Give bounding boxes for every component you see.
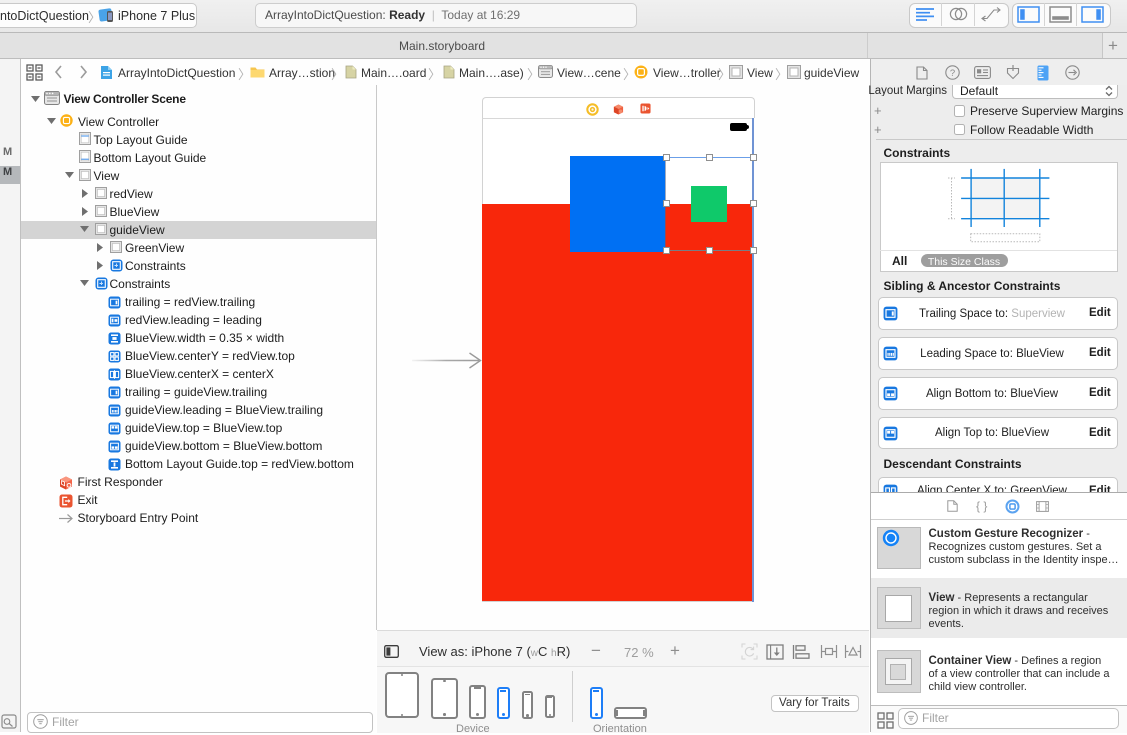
svg-text:?: ? bbox=[950, 68, 955, 79]
